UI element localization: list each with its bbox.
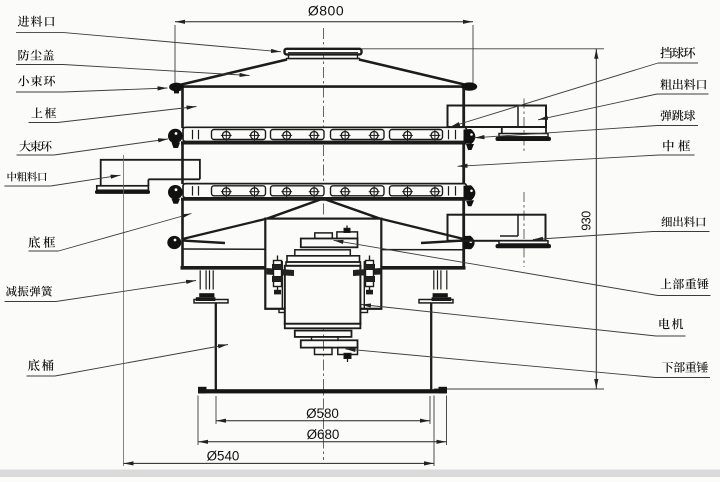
- svg-text:930: 930: [580, 211, 594, 231]
- svg-text:Ø680: Ø680: [307, 427, 340, 442]
- svg-text:Ø580: Ø580: [306, 406, 339, 421]
- svg-text:Ø800: Ø800: [308, 3, 344, 19]
- svg-text:Ø540: Ø540: [207, 449, 240, 464]
